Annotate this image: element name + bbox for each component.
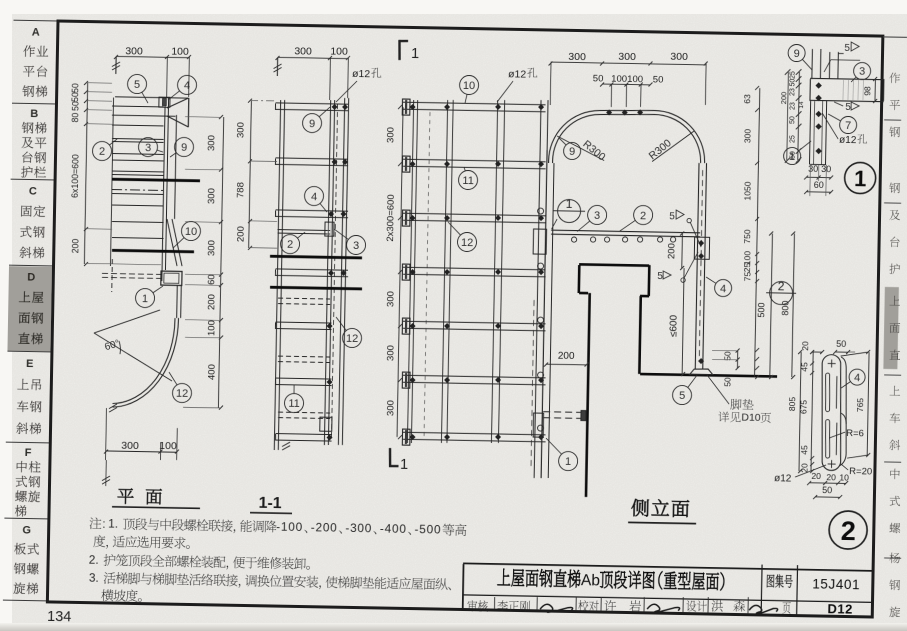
svg-text:300: 300 [618,51,636,63]
svg-text:788: 788 [235,182,246,198]
svg-text:5: 5 [669,211,675,222]
svg-text:50: 50 [722,377,732,387]
svg-text:50: 50 [789,116,796,124]
svg-text:300: 300 [385,400,396,416]
svg-text:300: 300 [235,122,246,138]
svg-text:2: 2 [778,279,785,293]
svg-text:ø12: ø12 [839,135,857,146]
svg-text:300: 300 [385,291,396,307]
svg-text:5: 5 [657,271,663,282]
svg-text:D: D [27,272,35,284]
svg-text:2: 2 [640,210,646,222]
svg-text:1050: 1050 [742,181,752,200]
svg-text:100: 100 [159,440,177,452]
svg-text:500: 500 [756,302,766,317]
svg-text:300: 300 [670,51,688,63]
svg-text:300: 300 [568,51,586,63]
svg-text:50: 50 [836,339,846,349]
svg-text:3: 3 [594,210,600,222]
svg-text:200: 200 [666,243,677,259]
svg-text:300: 300 [125,45,143,57]
svg-text:D12: D12 [827,601,853,616]
svg-text:134: 134 [47,609,71,625]
svg-text:A: A [32,26,40,38]
svg-text:4: 4 [854,372,860,384]
svg-text:11: 11 [462,175,474,187]
svg-text:765: 765 [855,398,865,413]
svg-text:50: 50 [653,74,664,85]
svg-text:G: G [22,524,31,536]
svg-text:80: 80 [70,112,80,122]
svg-text:45: 45 [799,445,809,455]
svg-text:5: 5 [679,390,685,402]
svg-text:200: 200 [235,226,246,242]
svg-text:200: 200 [70,239,80,254]
svg-text:11: 11 [288,398,300,410]
svg-text:10: 10 [839,472,849,482]
svg-text:30: 30 [808,164,818,174]
svg-text:-100: -100 [276,519,303,533]
svg-text:ø12: ø12 [508,68,526,80]
svg-text:2x300=600: 2x300=600 [385,194,397,241]
svg-text:20: 20 [800,341,810,351]
svg-text:4: 4 [184,80,190,92]
svg-text:800: 800 [780,300,790,315]
svg-text:5: 5 [845,102,851,113]
svg-text:7: 7 [845,120,851,132]
svg-text:1-1: 1-1 [258,495,282,512]
svg-text:4: 4 [720,283,726,295]
svg-text:12: 12 [461,237,473,249]
svg-text:75: 75 [742,271,752,281]
svg-text:300: 300 [206,135,217,151]
svg-text:1: 1 [400,457,408,473]
svg-text:50: 50 [70,83,80,93]
svg-text:50: 50 [789,78,796,86]
svg-text:-500: -500 [414,522,441,536]
svg-text:-200: -200 [311,520,338,534]
svg-text:1: 1 [142,293,148,305]
svg-text:200: 200 [558,351,575,362]
svg-text:300: 300 [121,440,139,452]
svg-text:400: 400 [206,364,217,380]
svg-text:9: 9 [181,142,187,154]
svg-text:60: 60 [206,274,217,285]
svg-text:10: 10 [463,80,475,92]
svg-text:1: 1 [566,197,573,211]
svg-text:2: 2 [99,146,105,158]
svg-text:23: 23 [789,102,796,110]
svg-text:750: 750 [742,229,752,244]
svg-text:9: 9 [794,48,800,60]
svg-text:C: C [29,186,37,198]
svg-text:20: 20 [811,471,821,481]
svg-text:Ab: Ab [581,572,600,589]
svg-text:25: 25 [789,71,796,79]
svg-text:300: 300 [294,45,312,57]
svg-text:50: 50 [822,485,832,495]
svg-text:20: 20 [799,463,809,473]
svg-text:25: 25 [742,262,752,272]
svg-text:1: 1 [565,456,571,468]
svg-text:100: 100 [206,320,217,336]
svg-text:4: 4 [311,191,317,203]
svg-text:D10: D10 [741,412,761,424]
svg-text:100: 100 [330,45,348,57]
svg-text:100: 100 [611,74,627,85]
svg-text:20: 20 [826,472,836,482]
svg-text:5: 5 [844,43,850,54]
svg-text:2: 2 [287,239,293,251]
svg-text:805: 805 [787,397,797,412]
svg-text:300: 300 [385,127,396,143]
svg-text:300: 300 [742,129,752,144]
svg-text:2: 2 [841,516,857,546]
svg-text:12: 12 [346,333,358,345]
svg-text:200: 200 [779,92,788,105]
svg-text:50: 50 [70,92,80,102]
svg-text:1.: 1. [108,516,118,530]
svg-text:300: 300 [206,188,217,204]
svg-text:-300: -300 [345,521,372,535]
svg-text:63: 63 [742,94,752,104]
svg-text:≤600: ≤600 [669,314,680,337]
svg-text:100: 100 [627,74,643,85]
svg-text:98: 98 [862,86,872,96]
svg-text:2.: 2. [89,553,99,567]
svg-text:-400: -400 [380,521,407,535]
svg-text:ø12: ø12 [774,473,792,484]
svg-text:1: 1 [411,46,419,62]
svg-text:E: E [26,358,34,370]
svg-text:25: 25 [789,135,796,143]
svg-text:300: 300 [385,345,396,361]
svg-text:9: 9 [309,118,315,130]
svg-text:ø12: ø12 [352,68,370,80]
svg-text:3: 3 [353,240,359,252]
svg-text:14: 14 [798,101,805,109]
svg-text:6x100=600: 6x100=600 [70,154,81,198]
svg-text:R=6: R=6 [846,428,864,439]
svg-text:60: 60 [814,180,824,190]
svg-text:B: B [30,108,38,120]
svg-text:12: 12 [176,388,188,400]
svg-text:R=20: R=20 [849,466,872,477]
svg-text:50: 50 [70,101,80,111]
svg-text:9: 9 [569,146,575,158]
svg-text:5: 5 [134,79,140,91]
svg-text:15J401: 15J401 [812,576,860,592]
svg-text:100: 100 [171,45,189,57]
svg-text:F: F [25,447,32,459]
svg-text:23: 23 [789,88,796,96]
svg-text:1: 1 [854,166,867,191]
svg-text:300: 300 [206,240,217,256]
svg-text:3.: 3. [89,571,99,585]
svg-text:10: 10 [185,226,197,238]
svg-text:200: 200 [206,294,217,310]
svg-text:3: 3 [859,66,865,78]
svg-text:50: 50 [593,73,604,84]
svg-text:3: 3 [145,142,151,154]
